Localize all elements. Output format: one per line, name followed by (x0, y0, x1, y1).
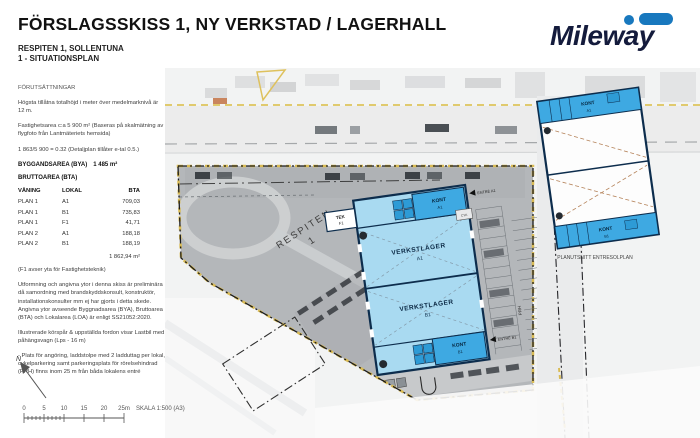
scale-bar: 0 5 10 15 20 25m SKALA 1:500 (A3) (16, 396, 266, 432)
bya-line: BYGGANDSAREA (BYA)1 485 m² (18, 161, 166, 169)
table-cell: F1 (62, 219, 94, 227)
table-cell: A1 (62, 230, 94, 238)
table-cell: PLAN 1 (18, 219, 62, 227)
f1-note: (F1 avser yta för Fastighetsteknik) (18, 266, 166, 274)
drawing-subtitle: 1 - SITUATIONSPLAN (18, 54, 124, 64)
scale-tick-label: 20 (101, 406, 108, 412)
table-cell: PLAN 1 (18, 209, 62, 217)
scale-tick-label: 5 (42, 406, 46, 412)
scale-tick-label: 10 (61, 406, 68, 412)
drawing-sheet: FÖRSLAGSSKISS 1, NY VERKSTAD / LAGERHALL… (0, 0, 700, 438)
table-cell: A1 (62, 198, 94, 206)
table-cell: 709,03 (94, 198, 144, 206)
note-disclaimer: Utformning och angivna ytor i denna skis… (18, 281, 166, 322)
north-arrowhead-icon (20, 362, 30, 374)
col-header: LOKAL (62, 187, 94, 195)
note-etal: 1 863/5 900 = 0.32 (Detaljplan tillåter … (18, 146, 166, 154)
scale-tick-label: 15 (81, 406, 88, 412)
bta-label: BRUTTOAREA (BTA) (18, 174, 166, 182)
scale-tick-label: 25m (118, 406, 130, 412)
table-cell: PLAN 2 (18, 230, 62, 238)
entresol-kont-b-code: B1 (604, 234, 609, 239)
col-header: BTA (94, 187, 144, 195)
note-height: Högsta tillåtna totalhöjd i meter över m… (18, 99, 166, 115)
note-area: Fastighetsarea c:a 5 900 m² (Baseras på … (18, 122, 166, 138)
logo-text: Mileway (550, 20, 654, 52)
subtitle-block: RESPITEN 1, SOLLENTUNA 1 - SITUATIONSPLA… (18, 44, 124, 65)
project-subtitle: RESPITEN 1, SOLLENTUNA (18, 44, 124, 54)
entresol-caption: PLANUTSNITT ENTRESOLPLAN (557, 255, 633, 261)
truck-cab (396, 378, 406, 388)
table-cell: 735,83 (94, 209, 144, 217)
bta-table: VÅNING LOKAL BTA PLAN 1 A1 709,03 PLAN 1… (18, 187, 166, 261)
table-cell: PLAN 1 (18, 198, 62, 206)
north-label: N (16, 356, 22, 363)
hall-b-code: B1 (424, 312, 431, 319)
notes-panel: FÖRUTSÄTTNINGAR Högsta tillåtna totalhöj… (18, 84, 166, 383)
table-cell: B1 (62, 240, 94, 248)
site-plan: RESPITEN 1 KONT A1 TEK F1 VERKSTLAGER A1 (165, 68, 700, 438)
scale-caption: SKALA 1:500 (A3) (136, 406, 185, 412)
entresol-kont-a-code: A1 (586, 108, 591, 113)
col-header: VÅNING (18, 187, 62, 195)
scale-labels: 0 5 10 15 20 25m (22, 406, 130, 412)
bya-value: 1 485 m² (93, 162, 117, 168)
hall-a-code: A1 (416, 256, 423, 263)
page-title: FÖRSLAGSSKISS 1, NY VERKSTAD / LAGERHALL (18, 14, 446, 35)
bta-total: 1 862,94 m² (18, 253, 144, 261)
table-cell: 188,18 (94, 230, 144, 238)
notes-section-title: FÖRUTSÄTTNINGAR (18, 84, 166, 92)
entresol-building: KONT A1 KONT B1 (537, 88, 659, 249)
bya-label: BYGGANDSAREA (BYA) (18, 162, 87, 168)
mileway-logo: Mileway (548, 6, 693, 62)
scale-tick-label: 0 (22, 406, 26, 412)
note-vehicles: Illustrerade körspår & uppställda fordon… (18, 329, 166, 345)
table-cell: 188,19 (94, 240, 144, 248)
table-cell: 41,71 (94, 219, 144, 227)
table-cell: B1 (62, 209, 94, 217)
table-cell: PLAN 2 (18, 240, 62, 248)
